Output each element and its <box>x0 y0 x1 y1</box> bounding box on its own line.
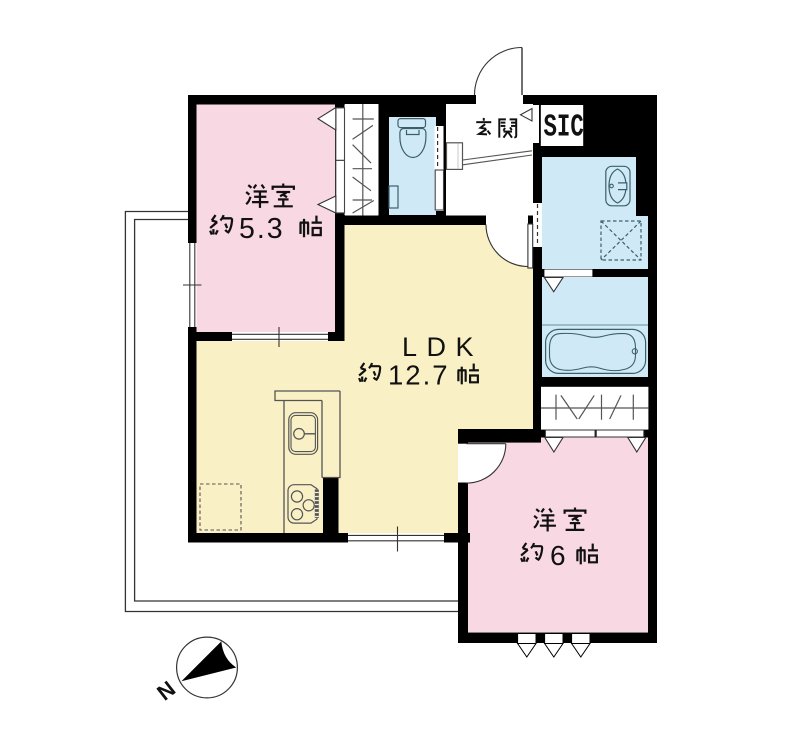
svg-text:LDK: LDK <box>402 332 483 362</box>
svg-text:5.3: 5.3 <box>239 213 285 245</box>
svg-text:6: 6 <box>550 540 566 571</box>
svg-text:12.7: 12.7 <box>388 360 450 391</box>
svg-text:SIC: SIC <box>544 110 584 146</box>
